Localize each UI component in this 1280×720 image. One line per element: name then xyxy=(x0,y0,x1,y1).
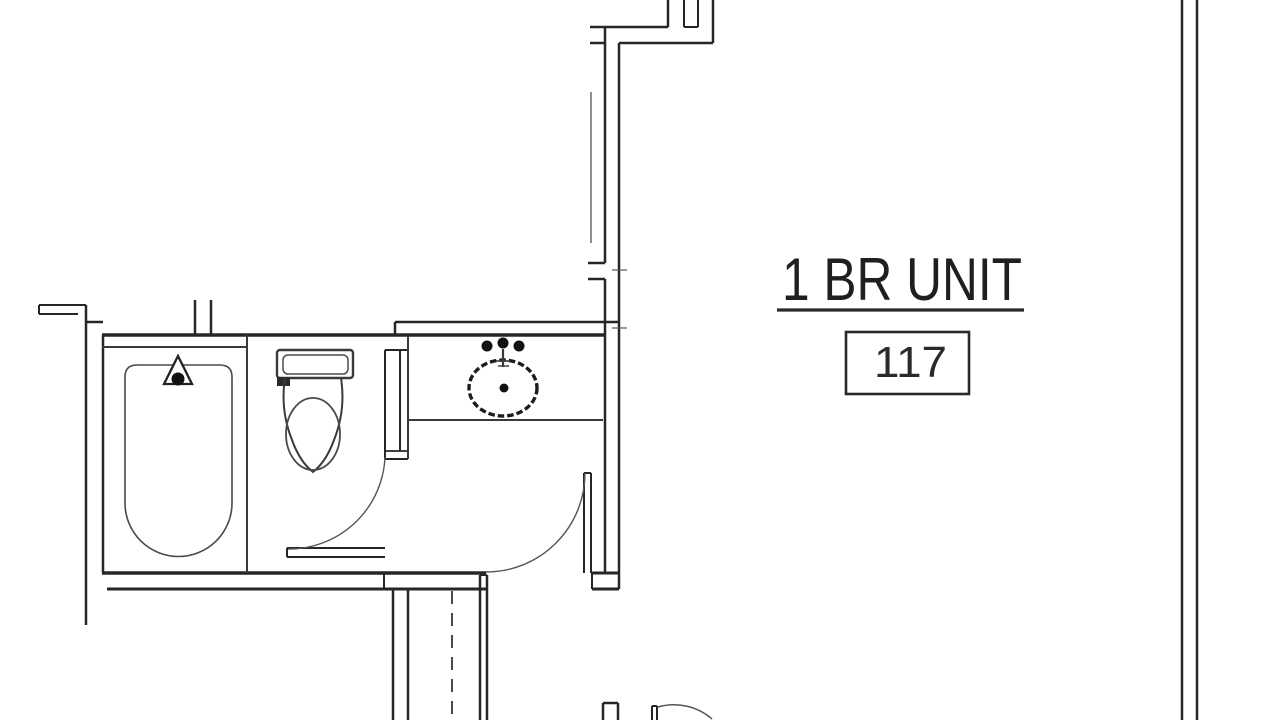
compartment-door-swing-arc xyxy=(288,457,385,549)
top-corridor-walls xyxy=(590,0,713,43)
unit-number: 117 xyxy=(874,338,947,387)
faucet-spout xyxy=(498,338,509,349)
tub-basin xyxy=(125,365,232,557)
compartment-door xyxy=(287,457,385,557)
faucet-handle-left xyxy=(482,341,493,352)
right-party-wall xyxy=(1182,0,1197,720)
toilet xyxy=(277,350,353,472)
shower-drain-dot xyxy=(172,373,185,386)
bathtub xyxy=(102,335,247,573)
entry-door-swing-arc xyxy=(658,705,712,719)
bathroom-door-swing-arc xyxy=(486,473,585,572)
faucet-handle-right xyxy=(514,341,525,352)
east-wall xyxy=(588,27,627,589)
vanity-sink xyxy=(408,336,603,459)
south-wall xyxy=(102,573,620,589)
sink-drain-dot xyxy=(500,384,509,393)
floor-plan-drawing: 1 BR UNIT 117 xyxy=(0,0,1280,720)
left-wall xyxy=(39,305,103,625)
plan-title: 1 BR UNIT xyxy=(782,246,1022,313)
title-block: 1 BR UNIT 117 xyxy=(777,246,1024,394)
bathroom-door xyxy=(486,473,591,573)
plumbing-wall xyxy=(385,350,408,459)
entry-door xyxy=(603,703,712,720)
floorplan-canvas: 1 BR UNIT 117 xyxy=(0,0,1280,720)
lower-closet-walls xyxy=(393,575,487,720)
north-wall xyxy=(102,300,619,335)
